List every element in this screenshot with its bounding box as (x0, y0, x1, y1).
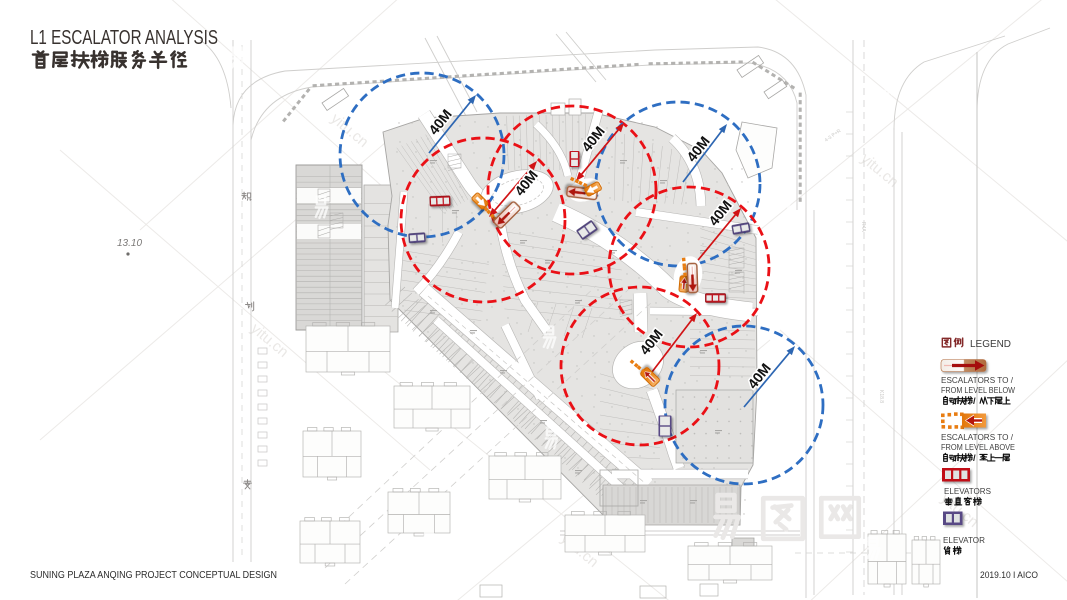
svg-text:ELEVATORS: ELEVATORS (944, 486, 991, 496)
svg-text:R4A: R4A (860, 222, 866, 232)
svg-text:LEGEND: LEGEND (970, 338, 1011, 350)
svg-text:FROM LEVEL ABOVE: FROM LEVEL ABOVE (941, 442, 1015, 452)
svg-text:K18.8: K18.8 (878, 390, 884, 403)
svg-text:/: / (973, 396, 976, 407)
svg-text:13.10: 13.10 (117, 238, 142, 249)
svg-text:2019.10 I AICO: 2019.10 I AICO (980, 570, 1038, 581)
svg-text:FROM LEVEL BELOW: FROM LEVEL BELOW (941, 385, 1016, 395)
svg-text:ELEVATOR: ELEVATOR (943, 535, 985, 545)
svg-text:/: / (973, 453, 976, 464)
svg-text:L1 ESCALATOR ANALYSIS: L1 ESCALATOR ANALYSIS (30, 26, 218, 49)
svg-text:SUNING PLAZA ANQING PROJECT CO: SUNING PLAZA ANQING PROJECT CONCEPTUAL D… (30, 570, 277, 581)
svg-text:ESCALATORS TO /: ESCALATORS TO / (941, 375, 1014, 385)
svg-text:ESCALATORS TO /: ESCALATORS TO / (941, 432, 1014, 442)
